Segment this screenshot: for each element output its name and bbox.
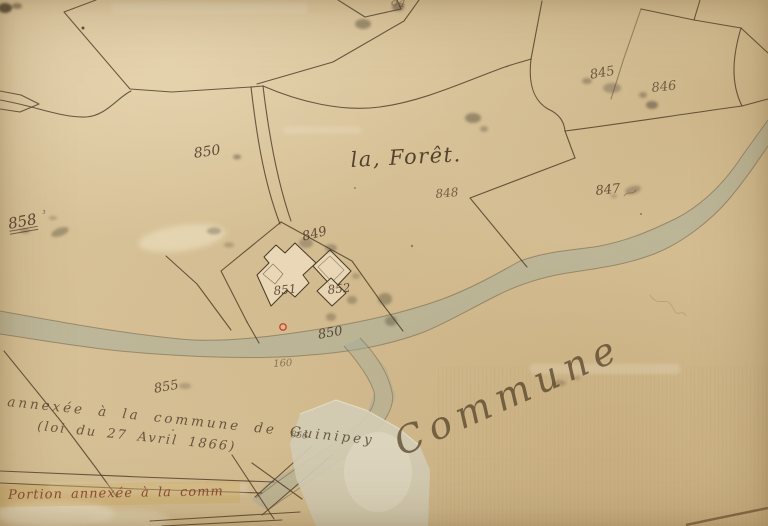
watermark-band xyxy=(283,126,361,134)
parcel-number-848: 848 xyxy=(435,186,459,200)
portion-annexed-note: Portion annexée à la comm xyxy=(8,485,224,502)
paper-pale-patches xyxy=(0,219,227,526)
parcel-number-858-superscript: ³ xyxy=(42,210,47,219)
parcel-number-851: 851 xyxy=(273,283,297,297)
parcel-number-850: 850 xyxy=(193,143,221,161)
cadastral-map-canvas[interactable]: 84 850 845 846 847 la, Forêt. 848 858 ³ … xyxy=(0,0,768,526)
parcel-number-84-clipped: 84 xyxy=(390,0,407,9)
place-name-la-foret: la, Forêt. xyxy=(350,144,462,171)
parcel-number-847: 847 xyxy=(595,182,621,198)
parcel-number-852: 852 xyxy=(327,282,351,296)
parcel-number-160: 160 xyxy=(273,359,293,370)
red-circle-marker xyxy=(280,324,286,330)
parcel-number-846: 846 xyxy=(651,79,677,95)
watermark-band xyxy=(112,3,307,14)
